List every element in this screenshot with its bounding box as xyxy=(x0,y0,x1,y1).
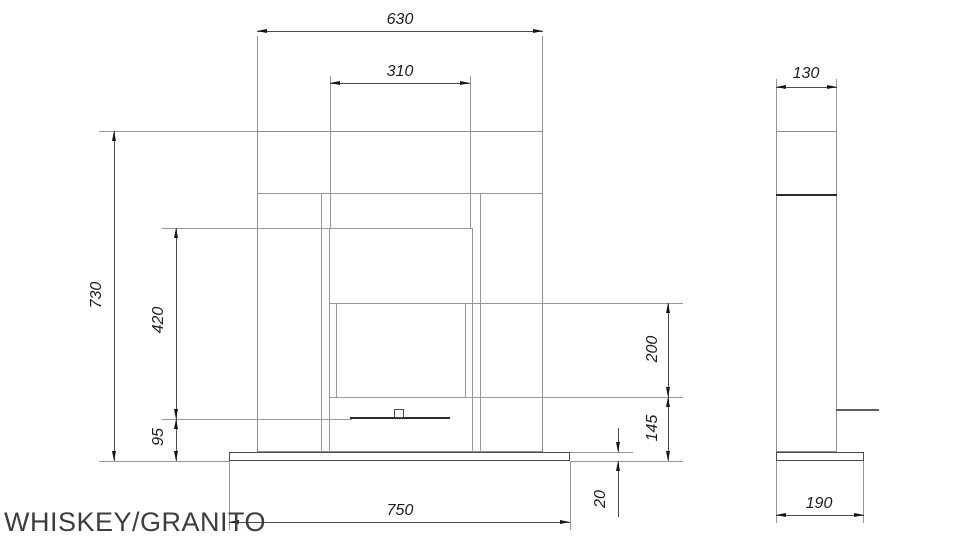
side-body-outline xyxy=(776,131,837,452)
side-shelf-line xyxy=(836,409,879,411)
dim-arrow xyxy=(776,85,786,89)
dim-arrow xyxy=(257,29,267,33)
ext-line xyxy=(542,36,543,131)
dim-750-line xyxy=(229,522,570,523)
dim-190-line xyxy=(776,515,864,516)
dim-310-line xyxy=(330,83,470,84)
opening-bottom-line xyxy=(329,397,473,398)
opening-top-line xyxy=(329,303,473,304)
dim-420-line xyxy=(176,228,177,419)
base-plate-side xyxy=(776,452,864,461)
base-plate-front xyxy=(229,452,570,461)
dim-arrow xyxy=(112,451,116,461)
dim-420-label: 420 xyxy=(149,298,169,342)
dim-190-label: 190 xyxy=(797,494,841,514)
dim-arrow xyxy=(112,131,116,141)
ext-line xyxy=(470,76,471,228)
dim-arrow xyxy=(666,397,670,407)
ext-line xyxy=(472,397,683,398)
dim-310-label: 310 xyxy=(378,62,422,82)
glass-right-line xyxy=(465,303,466,397)
dim-arrow xyxy=(330,81,340,85)
dim-arrow xyxy=(854,513,864,517)
recess-right-line xyxy=(480,193,481,452)
dim-arrow xyxy=(174,451,178,461)
dim-200-line xyxy=(668,303,669,397)
dim-750-label: 750 xyxy=(378,501,422,521)
dim-20-label: 20 xyxy=(591,477,611,521)
dim-arrow xyxy=(560,520,570,524)
ext-line xyxy=(99,461,229,462)
ext-line xyxy=(472,303,683,304)
dim-730-label: 730 xyxy=(87,273,107,317)
dim-200-label: 200 xyxy=(643,327,663,371)
dim-730-line xyxy=(114,131,115,461)
dim-arrow xyxy=(174,228,178,238)
dim-arrow xyxy=(533,29,543,33)
dim-arrow xyxy=(174,409,178,419)
ext-line xyxy=(99,131,257,132)
firebox-frame-top-line xyxy=(329,228,473,229)
mantel-bottom-line xyxy=(257,193,543,194)
dim-arrow xyxy=(666,303,670,313)
dim-arrow xyxy=(776,513,786,517)
ext-line xyxy=(257,36,258,131)
dim-arrow xyxy=(666,387,670,397)
ext-line xyxy=(162,419,352,420)
firebox-frame-right-line xyxy=(472,228,473,452)
drawing-title: WHISKEY/GRANITO xyxy=(4,507,266,538)
dim-arrow xyxy=(666,451,670,461)
dim-145-label: 145 xyxy=(643,406,663,450)
dim-630-label: 630 xyxy=(378,10,422,30)
dim-arrow xyxy=(174,419,178,429)
ext-line xyxy=(570,461,571,530)
side-mantel-line xyxy=(776,194,837,196)
drawing-canvas: 630 310 730 420 95 200 145 20 750 130 19… xyxy=(0,0,970,546)
ext-line xyxy=(570,461,683,462)
glass-left-line xyxy=(336,303,337,397)
front-body-outline xyxy=(257,131,543,452)
dim-arrow xyxy=(827,85,837,89)
ext-line xyxy=(570,452,633,453)
ext-line xyxy=(162,228,329,229)
dim-arrow xyxy=(616,442,620,452)
burner-box xyxy=(394,409,404,418)
dim-95-label: 95 xyxy=(149,415,169,459)
dim-arrow xyxy=(616,461,620,471)
dim-630-line xyxy=(257,31,543,32)
ext-line xyxy=(330,76,331,228)
dim-arrow xyxy=(460,81,470,85)
dim-130-label: 130 xyxy=(784,64,828,84)
recess-left-line xyxy=(321,193,322,452)
